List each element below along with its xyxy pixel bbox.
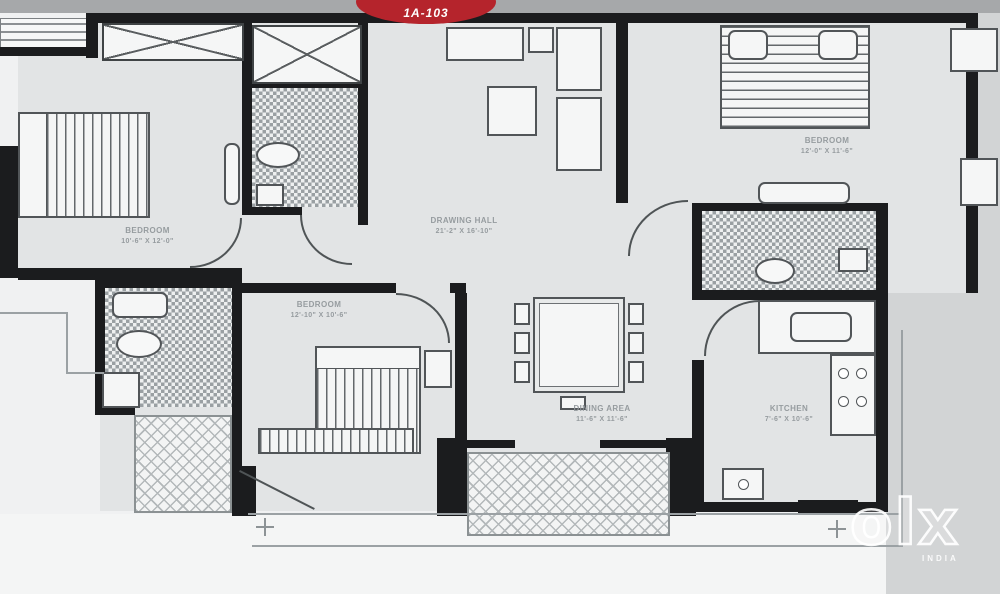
dining-chair: [514, 361, 530, 383]
bath3-sink-counter: [112, 292, 168, 318]
ac-ledge-mid: [960, 158, 998, 206]
terrace-line: [66, 372, 104, 374]
outer-wall-left: [0, 146, 18, 278]
drawing-hall-name: DRAWING HALL: [430, 216, 497, 225]
kitchen-dims: 7'-6" X 10'-6": [730, 415, 848, 424]
olx-watermark-logo: olx INDIA: [850, 486, 1000, 572]
bedroom1-dims: 10'-6" X 12'-0": [75, 237, 220, 246]
bedroom3-wardrobe: [258, 428, 414, 454]
dining-chair: [514, 332, 530, 354]
outside-patch: [0, 280, 95, 314]
kitchen-left-wall: [692, 360, 704, 510]
olx-brand-text: olx: [850, 486, 960, 559]
bedroom1-label: BEDROOM 10'-6" X 12'-0": [75, 226, 220, 246]
hall-right-wall: [616, 23, 628, 203]
bath3-bottom-wall: [95, 407, 135, 415]
drawing-hall-label: DRAWING HALL 21'-2" X 16'-10": [390, 216, 538, 236]
kitchen-top-wall: [692, 290, 888, 300]
bedroom1-door-shutter: [224, 143, 240, 205]
bath1-sink: [256, 184, 284, 206]
wardrobe-crossed-bedroom1: [102, 23, 244, 61]
kitchen-name: KITCHEN: [770, 404, 808, 413]
dining-name: DINING AREA: [574, 404, 631, 413]
dining-label: DINING AREA 11'-6" X 11'-6": [535, 404, 669, 424]
bedroom2-dresser: [758, 182, 850, 204]
sofa-single-seater: [556, 97, 602, 171]
dining-dims: 11'-6" X 11'-6": [535, 415, 669, 424]
dining-chair: [628, 303, 644, 325]
bed-bedroom1: [18, 112, 150, 218]
bedroom3-top-wall: [232, 283, 396, 293]
sofa-three-seater: [446, 27, 524, 61]
drawing-hall-dims: 21'-2" X 16'-10": [390, 227, 538, 236]
unit-number-text: 1A-103: [356, 6, 496, 20]
kitchen-service-threshold: [798, 500, 858, 514]
balcony-left-post: [437, 438, 467, 516]
bath2-sink: [838, 248, 868, 272]
ledge-wall: [0, 47, 92, 56]
bed2-pillow-left: [728, 30, 768, 60]
bed1-mattress: [47, 114, 148, 216]
bedroom3-label: BEDROOM 12'-10" X 10'-6": [248, 300, 390, 320]
bedroom3-left-wall: [232, 283, 242, 473]
bed2-pillow-right: [818, 30, 858, 60]
sofa-side-table: [528, 27, 554, 53]
kitchen-wash-basin: [722, 468, 764, 500]
ledge-divider-wall: [86, 13, 98, 58]
stove-burner: [856, 368, 867, 379]
bedroom2-dims: 12'-0" X 11'-6": [748, 147, 906, 156]
terrace-line: [0, 312, 68, 314]
sofa-two-seater: [556, 27, 602, 91]
outer-wall-top: [86, 13, 978, 23]
kitchen-label: KITCHEN 7'-6" X 10'-6": [730, 404, 848, 424]
coffee-table: [487, 86, 537, 136]
bath1-bottom-wall: [242, 207, 302, 215]
dining-table: [533, 297, 625, 393]
dining-chair: [628, 332, 644, 354]
dining-chair: [514, 303, 530, 325]
bath2-right-wall: [876, 203, 888, 293]
dining-chair: [628, 361, 644, 383]
terrace-line: [252, 545, 903, 547]
floorplan-image: BEDROOM 10'-6" X 12'-0" DRAWING HALL 21'…: [0, 0, 1000, 594]
bedroom3-right-wall: [455, 293, 467, 445]
bed1-pillow: [20, 114, 47, 216]
balcony-floor: [467, 452, 670, 536]
terrace-cross-mark: [256, 518, 274, 536]
bedroom1-name: BEDROOM: [125, 226, 170, 235]
bath1-toilet: [256, 142, 300, 168]
bedroom3-dims: 12'-10" X 10'-6": [248, 311, 390, 320]
bath3-shower-tray: [102, 372, 140, 408]
planter-ledge: [0, 18, 88, 50]
wardrobe-crossed-dress: [252, 25, 362, 84]
bed3-pillow: [317, 348, 419, 369]
terrace-line: [248, 513, 903, 515]
dressing-area-floor: [134, 415, 232, 513]
bath3-top-wall: [95, 278, 242, 288]
bedroom2-label: BEDROOM 12'-0" X 11'-6": [748, 136, 906, 156]
bedroom3-nightstand: [424, 350, 452, 388]
terrace-line: [66, 312, 68, 374]
bedroom3-top-wall-stub: [450, 283, 466, 293]
olx-region-text: INDIA: [922, 554, 959, 563]
bath2-top-wall: [692, 203, 888, 211]
stove-burner: [838, 368, 849, 379]
dining-bottom-wall-left: [455, 440, 515, 448]
bath2-toilet: [755, 258, 795, 284]
dining-bottom-wall-right: [600, 440, 666, 448]
bottom-background: [0, 514, 886, 594]
kitchen-right-wall: [876, 293, 888, 512]
stove-burner: [856, 396, 867, 407]
basin-drain: [738, 479, 749, 490]
kitchen-counter-top: [758, 300, 876, 354]
top-gray-band: [0, 0, 1000, 13]
bath3-toilet: [116, 330, 162, 358]
ac-ledge-top: [950, 28, 998, 72]
bedroom2-name: BEDROOM: [805, 136, 850, 145]
bedroom3-name: BEDROOM: [297, 300, 342, 309]
kitchen-sink: [790, 312, 852, 342]
terrace-cross-mark: [828, 520, 846, 538]
